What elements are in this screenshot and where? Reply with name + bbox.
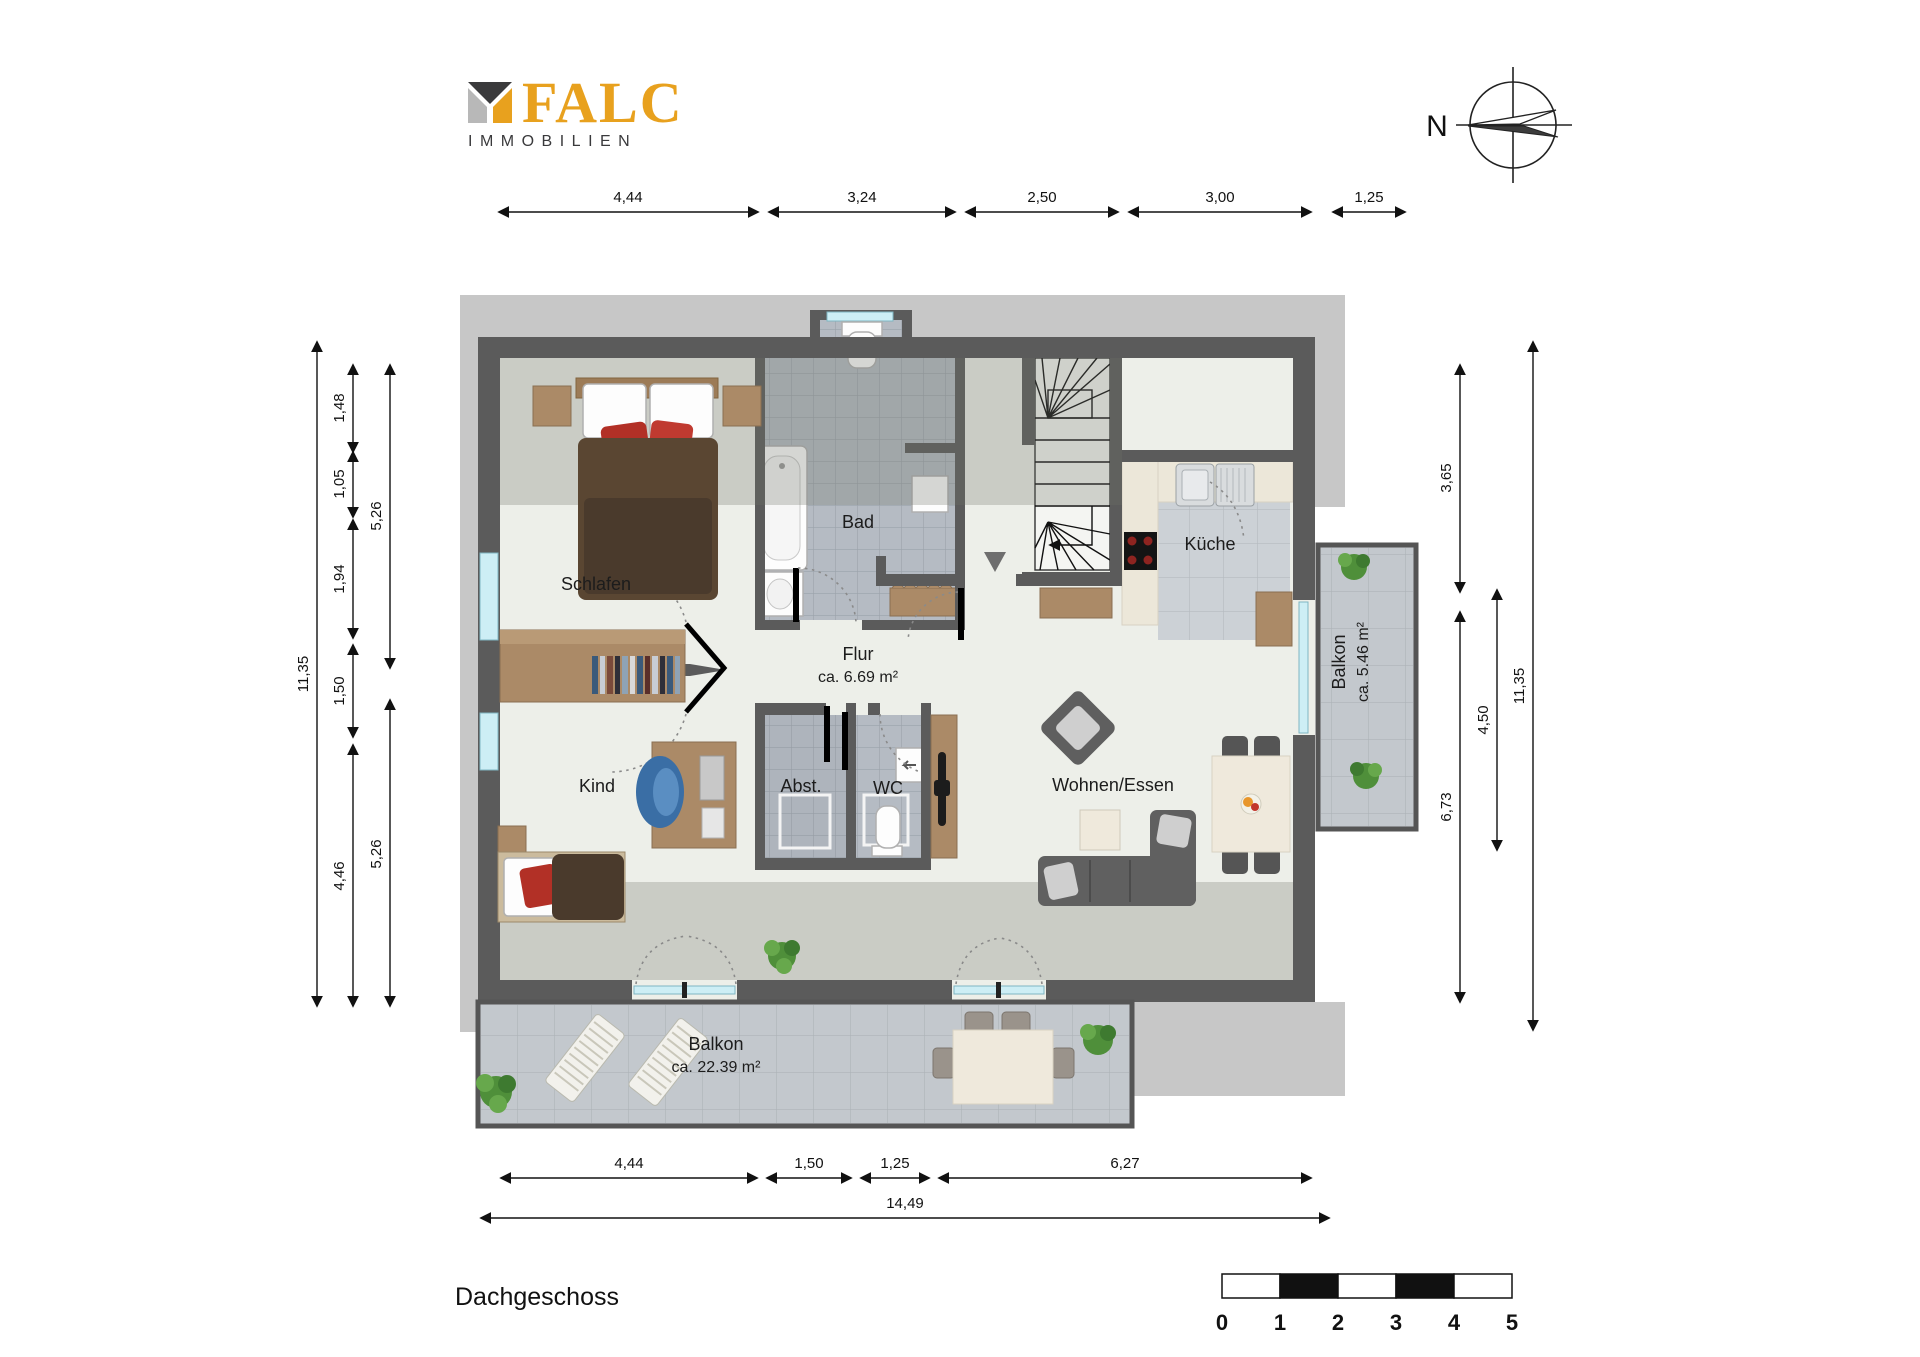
svg-text:4: 4	[1448, 1310, 1461, 1335]
floor-title: Dachgeschoss	[455, 1283, 619, 1311]
svg-text:6,27: 6,27	[1110, 1155, 1139, 1172]
svg-text:11,35: 11,35	[1511, 668, 1528, 704]
svg-text:4,50: 4,50	[1475, 705, 1492, 734]
svg-text:3,00: 3,00	[1205, 189, 1234, 206]
svg-text:1,50: 1,50	[331, 676, 348, 705]
svg-text:5: 5	[1506, 1310, 1518, 1335]
coffee-table-icon	[1080, 810, 1120, 850]
window-kind	[480, 713, 498, 770]
room-label-kind: Kind	[579, 776, 615, 796]
balkon-gross	[476, 1002, 1132, 1126]
falc-logo-icon	[468, 82, 512, 123]
svg-text:1,94: 1,94	[331, 564, 348, 593]
dimensions-bottom: 4,44 1,50 1,25 6,27 14,49	[481, 1155, 1329, 1218]
room-label-wohnen: Wohnen/Essen	[1052, 775, 1174, 795]
desk-chair-icon	[636, 756, 684, 828]
room-label-wc: WC	[873, 778, 903, 798]
svg-text:3: 3	[1390, 1310, 1402, 1335]
room-area-balkon-klein: ca. 5.46 m²	[1355, 621, 1372, 702]
dimensions-left: 11,35 1,48 1,05 1,94 1,50 4,46 5,26 5,26	[295, 342, 390, 1006]
room-area-balkon-gross: ca. 22.39 m²	[672, 1059, 762, 1076]
svg-text:4,46: 4,46	[331, 861, 348, 890]
svg-text:2,50: 2,50	[1027, 189, 1056, 206]
falc-logo: FALC IMMOBILIEN	[468, 70, 684, 150]
room-label-flur: Flur	[843, 644, 874, 664]
window-schlafen	[480, 553, 498, 640]
svg-text:1,50: 1,50	[794, 1155, 823, 1172]
room-label-balkon-gross: Balkon	[688, 1034, 743, 1054]
svg-text:2: 2	[1332, 1310, 1344, 1335]
wc-washbasin-icon	[896, 748, 922, 782]
brand-name: FALC	[522, 70, 684, 135]
room-label-abst: Abst.	[780, 776, 821, 796]
svg-text:1,25: 1,25	[1354, 189, 1383, 206]
svg-text:5,26: 5,26	[368, 501, 385, 530]
svg-text:1,48: 1,48	[331, 393, 348, 422]
svg-text:4,44: 4,44	[614, 1155, 643, 1172]
svg-text:0: 0	[1216, 1310, 1228, 1335]
schlafen-wardrobe-icon	[500, 630, 685, 702]
floorplan-page: FALC IMMOBILIEN N	[0, 0, 1920, 1357]
svg-text:4,44: 4,44	[613, 189, 642, 206]
room-label-schlafen: Schlafen	[561, 574, 631, 594]
dimensions-top: 4,44 3,24 2,50 3,00 1,25	[499, 189, 1405, 212]
floorplan-canvas: FALC IMMOBILIEN N	[0, 0, 1920, 1357]
scale-bar: 0 1 2 3 4 5	[1216, 1274, 1518, 1335]
svg-text:1,05: 1,05	[331, 469, 348, 498]
svg-text:1: 1	[1274, 1310, 1286, 1335]
wc-toilet-icon	[872, 806, 902, 856]
svg-text:1,25: 1,25	[880, 1155, 909, 1172]
svg-text:3,65: 3,65	[1438, 463, 1455, 492]
dimension-total-width: 14,49	[886, 1195, 924, 1212]
cooktop-icon	[1124, 532, 1157, 570]
compass-north-label: N	[1426, 110, 1448, 143]
stair-sideboard-icon	[1040, 588, 1112, 618]
kitchen-peninsula-icon	[890, 588, 958, 616]
room-label-bad: Bad	[842, 512, 874, 532]
room-label-kueche: Küche	[1184, 534, 1235, 554]
room-area-flur: ca. 6.69 m²	[818, 669, 899, 686]
brand-subtitle: IMMOBILIEN	[468, 133, 637, 150]
kitchen-cabinet-icon	[1256, 592, 1292, 646]
svg-text:11,35: 11,35	[295, 656, 312, 692]
balcony-door-right	[1299, 602, 1308, 733]
dimensions-right: 3,65 6,73 4,50 11,35	[1438, 342, 1533, 1030]
room-label-balkon-klein: Balkon	[1329, 634, 1349, 689]
compass-icon	[1456, 67, 1572, 183]
svg-text:3,24: 3,24	[847, 189, 876, 206]
svg-text:6,73: 6,73	[1438, 792, 1455, 821]
hall-wardrobe-icon	[931, 715, 957, 858]
svg-text:5,26: 5,26	[368, 839, 385, 868]
bad-window	[827, 312, 893, 321]
